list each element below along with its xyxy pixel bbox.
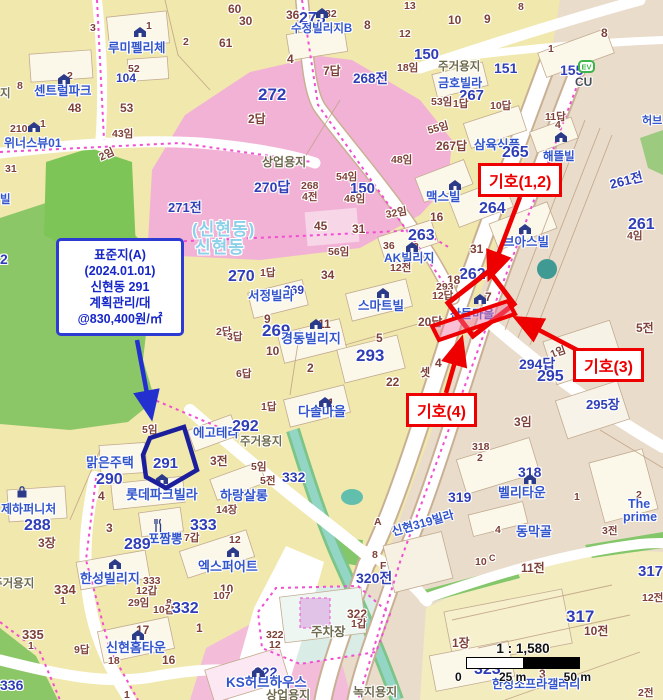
scale-ticks: 0 25 m 50 m (455, 670, 591, 684)
arrow-symbol3 (518, 319, 581, 352)
scale-ratio: 1 : 1,580 (455, 641, 591, 656)
callout-line-2: (2024.01.01) (61, 263, 179, 279)
symbol-label-1-2-text: 기호(1,2) (489, 174, 551, 191)
arrow-symbol4 (446, 341, 461, 393)
callout-line-1: 표준지(A) (61, 247, 179, 263)
scale-track (466, 657, 580, 669)
annotation-layer (0, 0, 663, 700)
scale-tick-25: 25 m (499, 670, 526, 684)
scale-half-white (467, 658, 523, 668)
symbol-label-3: 기호(3) (573, 348, 644, 382)
scale-tick-0: 0 (455, 670, 462, 684)
scale-bar: 1 : 1,580 0 25 m 50 m (455, 641, 591, 684)
callout-arrow (137, 340, 151, 415)
cadastral-map: 60813362733230193수정빌리지B88121061루미펠리체2115… (0, 0, 663, 700)
callout-line-5: @830,400원/㎡ (61, 311, 179, 327)
callout-line-3: 신현동 291 (61, 279, 179, 295)
scale-half-black (523, 658, 579, 668)
arrow-symbol12 (490, 197, 520, 276)
symbol-label-3-text: 기호(3) (584, 359, 633, 376)
symbol-label-4: 기호(4) (406, 393, 477, 427)
callout-line-4: 계획관리/대 (61, 295, 179, 311)
symbol-label-1-2: 기호(1,2) (478, 163, 562, 197)
standard-lot-callout: 표준지(A) (2024.01.01) 신현동 291 계획관리/대 @830,… (56, 238, 184, 336)
scale-tick-50: 50 m (564, 670, 591, 684)
symbol-label-4-text: 기호(4) (417, 404, 466, 421)
standard-lot-outline-291 (143, 427, 197, 488)
